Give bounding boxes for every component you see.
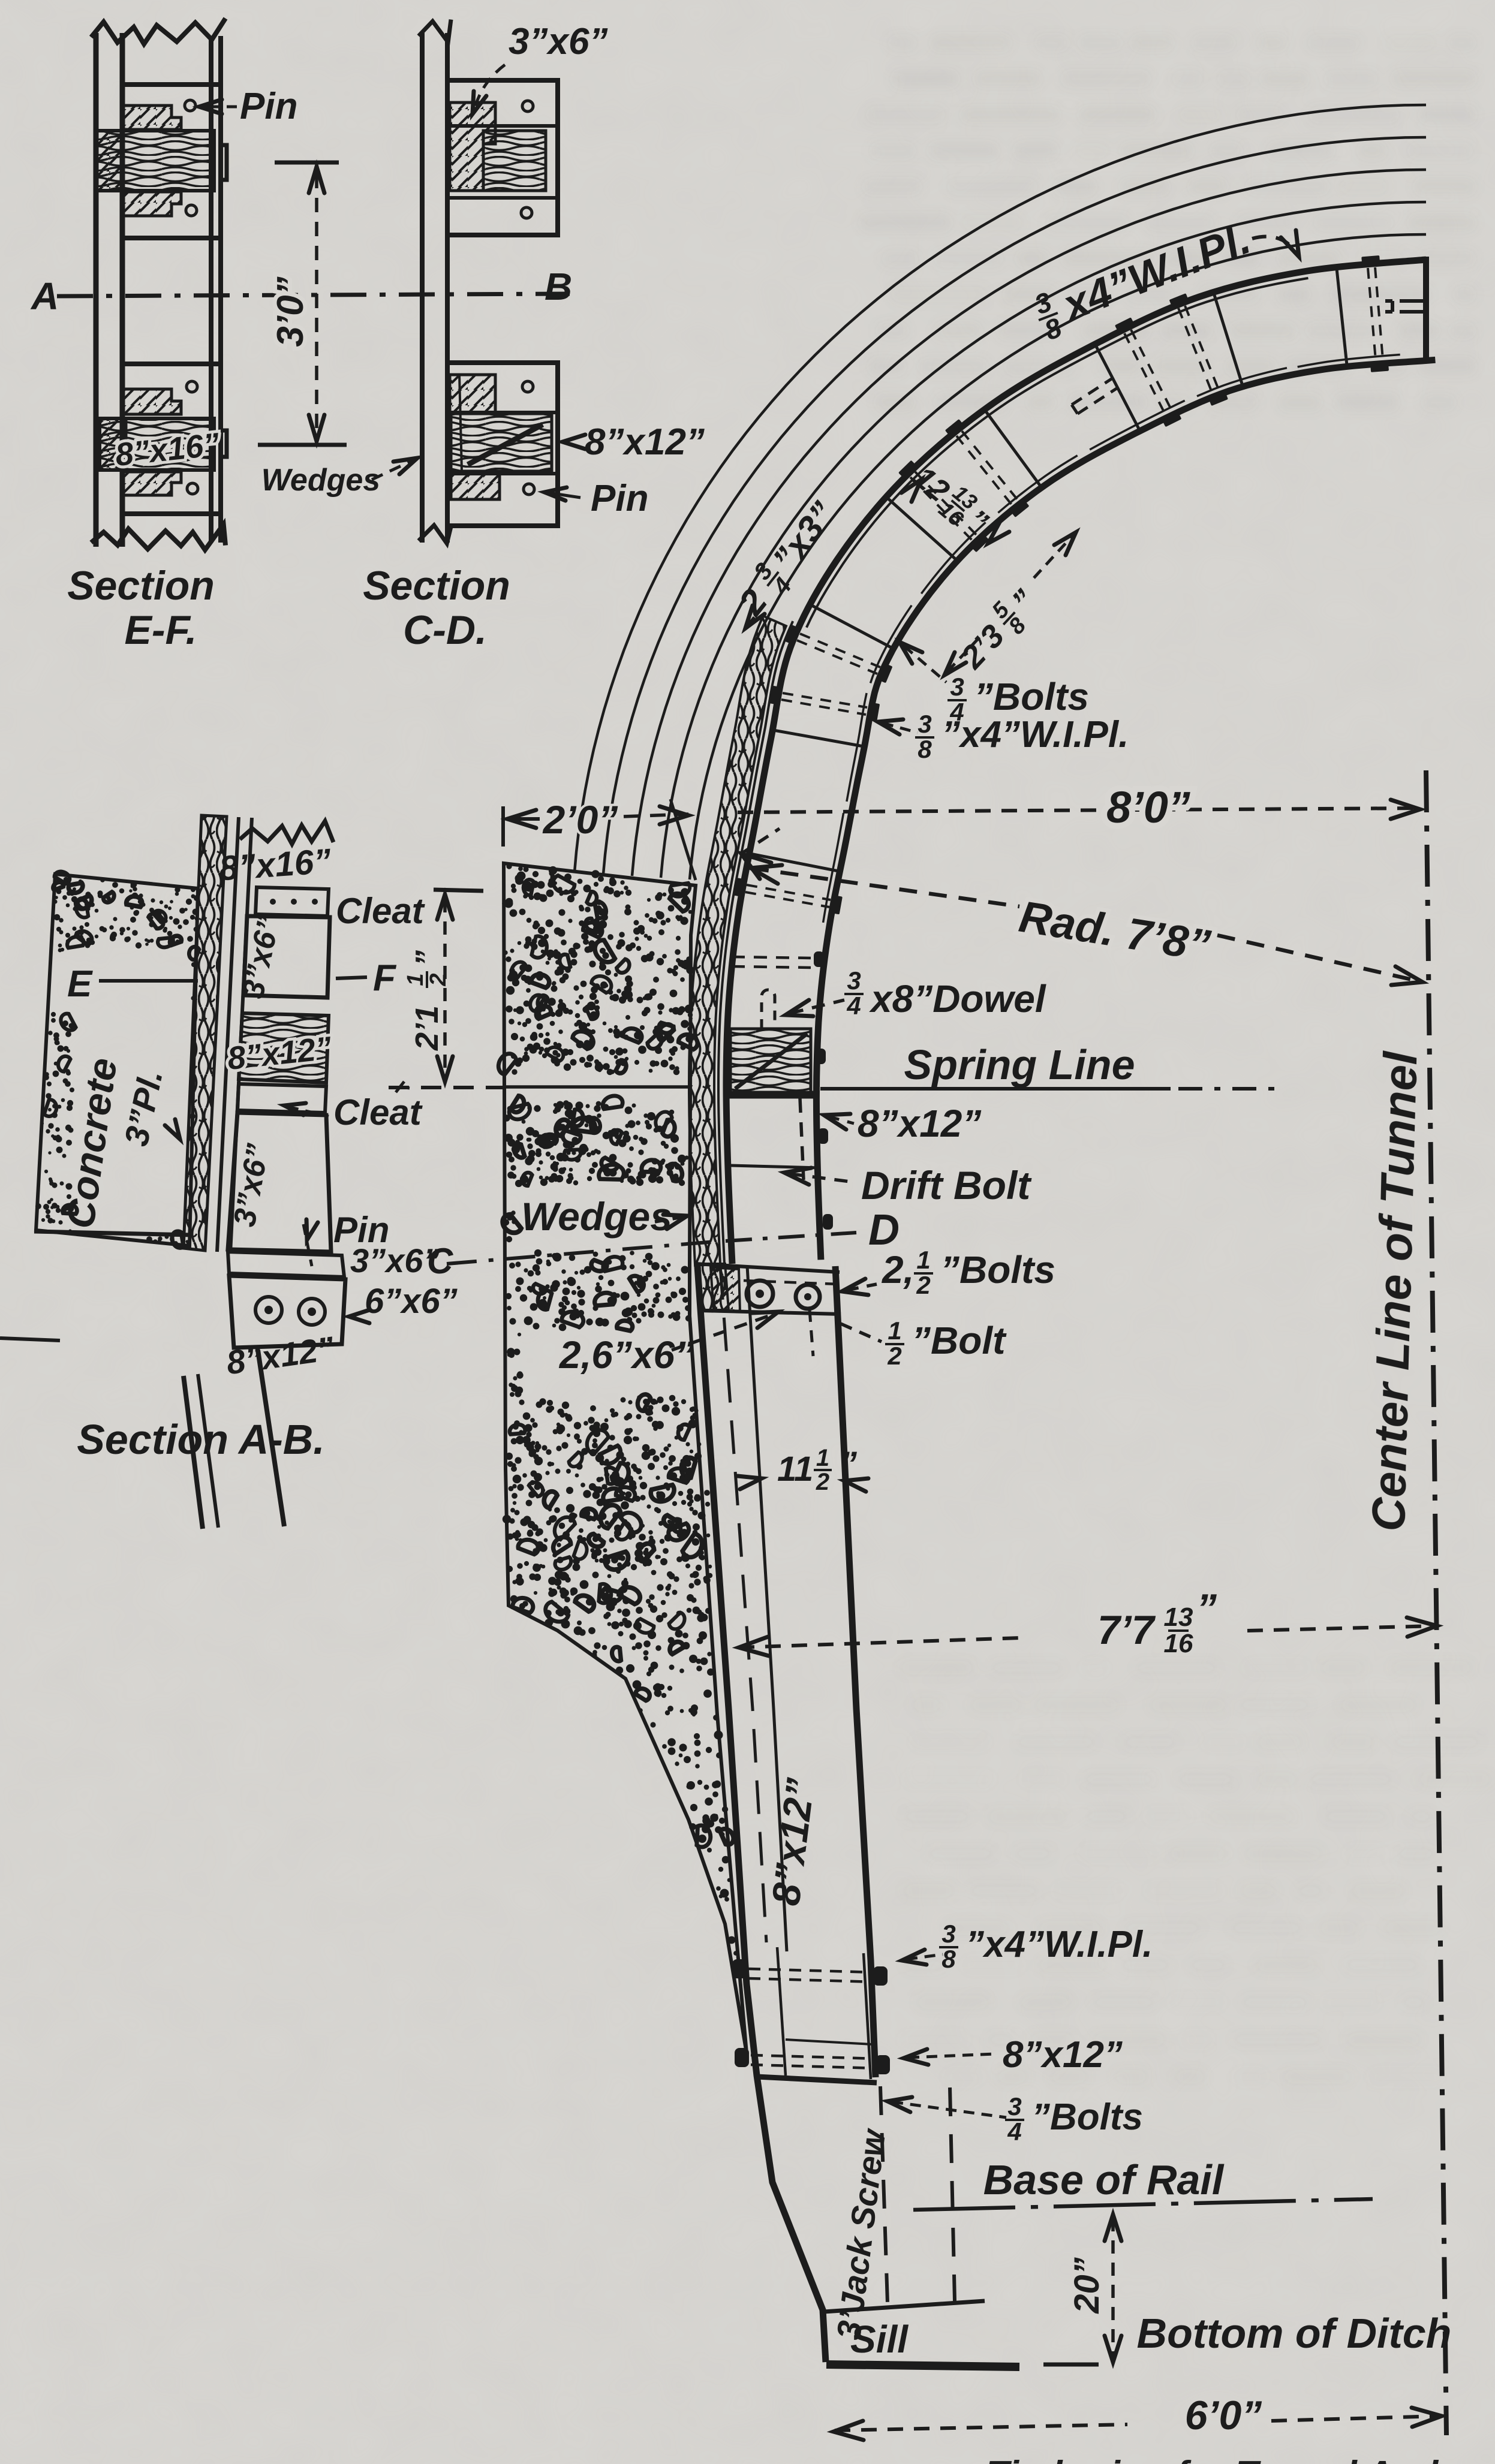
svg-text:Drift Bolt: Drift Bolt (861, 1163, 1032, 1207)
svg-text:”x4”W.I.Pl.: ”x4”W.I.Pl. (965, 1924, 1153, 1965)
svg-text:”x4”W.I.Pl.: ”x4”W.I.Pl. (941, 714, 1129, 755)
svg-text:Timbering for Tunnel Arch: Timbering for Tunnel Arch (986, 2454, 1451, 2464)
svg-text:Section: Section (363, 563, 510, 609)
svg-text:3: 3 (950, 673, 964, 701)
svg-text:2’1: 2’1 (409, 1005, 445, 1051)
svg-text:Pin: Pin (591, 478, 648, 519)
svg-text:2: 2 (816, 1469, 829, 1495)
svg-text:C: C (427, 1241, 454, 1281)
svg-text:1: 1 (916, 1246, 930, 1274)
svg-text:3: 3 (847, 966, 861, 995)
svg-text:”Bolts: ”Bolts (974, 675, 1089, 718)
svg-text:11: 11 (777, 1450, 813, 1489)
svg-text:F: F (373, 957, 397, 999)
svg-text:A: A (30, 275, 59, 318)
svg-text:7’7: 7’7 (1097, 1607, 1156, 1653)
svg-text:8”x16”: 8”x16” (218, 842, 332, 888)
svg-text:1: 1 (403, 973, 428, 986)
svg-text:8: 8 (918, 735, 932, 763)
svg-text:E-F.: E-F. (125, 607, 197, 653)
svg-text:Wedges: Wedges (261, 463, 380, 498)
svg-text:Spring Line: Spring Line (904, 1041, 1135, 1088)
svg-text:Bottom of Ditch: Bottom of Ditch (1137, 2310, 1452, 2357)
svg-text:6’0”: 6’0” (1185, 2393, 1262, 2438)
svg-text:1: 1 (888, 1317, 901, 1345)
svg-text:E: E (67, 963, 93, 1005)
svg-text:13: 13 (1164, 1602, 1193, 1632)
svg-text:”: ” (1196, 1586, 1217, 1631)
svg-text:Wedges: Wedges (521, 1194, 672, 1239)
svg-text:8: 8 (941, 1945, 956, 1973)
svg-text:Base of Rail: Base of Rail (983, 2156, 1225, 2203)
svg-text:2: 2 (887, 1342, 901, 1370)
svg-text:”Bolts: ”Bolts (1031, 2096, 1143, 2138)
svg-text:4: 4 (1007, 2117, 1021, 2146)
svg-text:2,6”x6”: 2,6”x6” (559, 1333, 694, 1376)
svg-text:Sill: Sill (850, 2318, 909, 2361)
svg-text:20”: 20” (1067, 2257, 1106, 2314)
svg-text:2: 2 (916, 1271, 930, 1299)
svg-text:1: 1 (816, 1445, 829, 1471)
svg-text:Cleat: Cleat (333, 1092, 423, 1132)
svg-text:2: 2 (426, 973, 451, 986)
svg-text:B: B (545, 265, 572, 308)
svg-text:3”x6”: 3”x6” (509, 21, 607, 62)
svg-text:Pin: Pin (240, 86, 297, 127)
svg-text:3: 3 (1007, 2092, 1021, 2120)
svg-text:8”x12”: 8”x12” (1003, 2034, 1123, 2076)
svg-text:”Bolt: ”Bolt (912, 1319, 1007, 1362)
svg-text:Cleat: Cleat (336, 891, 426, 931)
svg-text:D: D (868, 1206, 900, 1254)
svg-text:”Bolts: ”Bolts (940, 1248, 1055, 1291)
svg-text:Section: Section (67, 563, 215, 609)
svg-text:8’0”: 8’0” (1106, 782, 1190, 832)
svg-text:6”x6”: 6”x6” (365, 1282, 458, 1321)
svg-text:”: ” (409, 950, 445, 966)
svg-text:Section A-B.: Section A-B. (77, 1416, 325, 1463)
svg-text:x8”Dowel: x8”Dowel (869, 977, 1046, 1020)
svg-text:8”x12”: 8”x12” (585, 421, 705, 463)
svg-text:C-D.: C-D. (403, 607, 487, 653)
svg-text:16: 16 (1164, 1629, 1193, 1658)
svg-text:3: 3 (941, 1920, 955, 1948)
svg-text:3’0”: 3’0” (270, 276, 311, 347)
svg-text:2,: 2, (882, 1248, 914, 1291)
svg-text:8”x12”: 8”x12” (858, 1102, 981, 1145)
svg-text:2’0”: 2’0” (542, 797, 618, 842)
svg-text:4: 4 (846, 992, 861, 1020)
svg-text:3: 3 (918, 710, 931, 738)
